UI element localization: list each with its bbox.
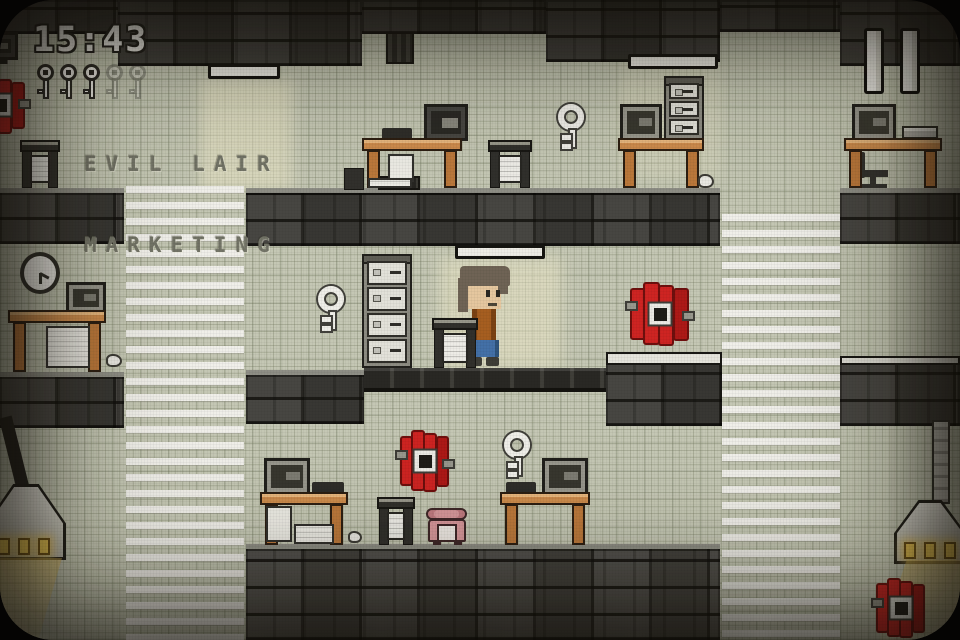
platform [840,188,960,244]
hud-key-collected-icon [36,64,55,101]
computer-monitor [620,104,662,141]
striped-column [722,214,840,640]
laptop [506,482,536,492]
printer [266,506,292,542]
hanging-lamp [0,414,70,640]
dynamite-bundle [876,578,926,638]
lamp-pole [0,416,30,493]
fluorescent-light [208,64,280,79]
hud-key-collected-icon [82,64,101,101]
laptop [312,482,344,492]
platform-white-top [840,356,960,426]
platform-white-top [606,352,722,426]
computer-monitor [424,104,468,141]
pause-icon [900,28,920,94]
ceiling-brick [546,0,720,62]
hud-timer: 15:43 [33,20,148,60]
lamp-pole [932,420,950,504]
trash-bin [344,168,364,190]
key-collectible [558,104,586,150]
ceiling-vent [386,32,414,64]
hud-key-row [36,64,147,101]
platform [246,188,720,246]
printer-stand [377,497,415,545]
paper-pile [294,524,334,544]
pause-button[interactable] [858,26,928,100]
dynamite-bundle [0,76,26,134]
hud-key-empty-icon [105,64,124,101]
printer-stand [488,140,532,188]
wall-clock [20,252,60,294]
key-collectible [318,286,346,332]
pause-icon [864,28,884,94]
filing-cabinet [664,76,704,140]
lamp-shade [0,484,66,560]
office-desk [500,492,590,545]
floor-brick [246,544,720,640]
filing-cabinet [362,254,412,368]
computer-monitor [264,458,310,495]
crumpled-paper [106,354,122,367]
game-screen[interactable]: 15:43 EVIL LAIR MARKETING [0,0,960,640]
lamp-shade [894,500,960,564]
key-collectible [504,432,532,478]
ceiling-brick [720,0,840,32]
dynamite-bundle [630,282,690,346]
printer [46,326,90,368]
crumpled-paper [698,174,714,188]
telephone [424,508,470,545]
computer-monitor [852,104,896,141]
office-desk [844,138,942,188]
room-sign-line1: EVIL LAIR [84,151,279,178]
hud-key-collected-icon [59,64,78,101]
ceiling-brick [118,0,362,66]
laptop [382,128,412,138]
room-sign-line2: MARKETING [84,232,279,259]
level-background-wall: 15:43 EVIL LAIR MARKETING [0,0,960,640]
paper-pile [368,178,412,188]
room-sign: EVIL LAIR MARKETING [84,97,279,313]
hud-key-empty-icon [128,64,147,101]
steel-beam-platform [364,368,606,392]
printer-stand [20,140,60,188]
fluorescent-light [628,54,718,69]
platform [246,370,364,424]
office-desk [618,138,704,188]
lamp-light-beam [0,558,62,640]
computer-monitor [542,458,588,495]
crumpled-paper [348,531,362,543]
fluorescent-light [455,245,545,259]
printer-stand [432,318,478,368]
ceiling-brick [362,0,546,34]
dynamite-bundle [400,430,450,492]
computer-monitor [0,32,18,60]
